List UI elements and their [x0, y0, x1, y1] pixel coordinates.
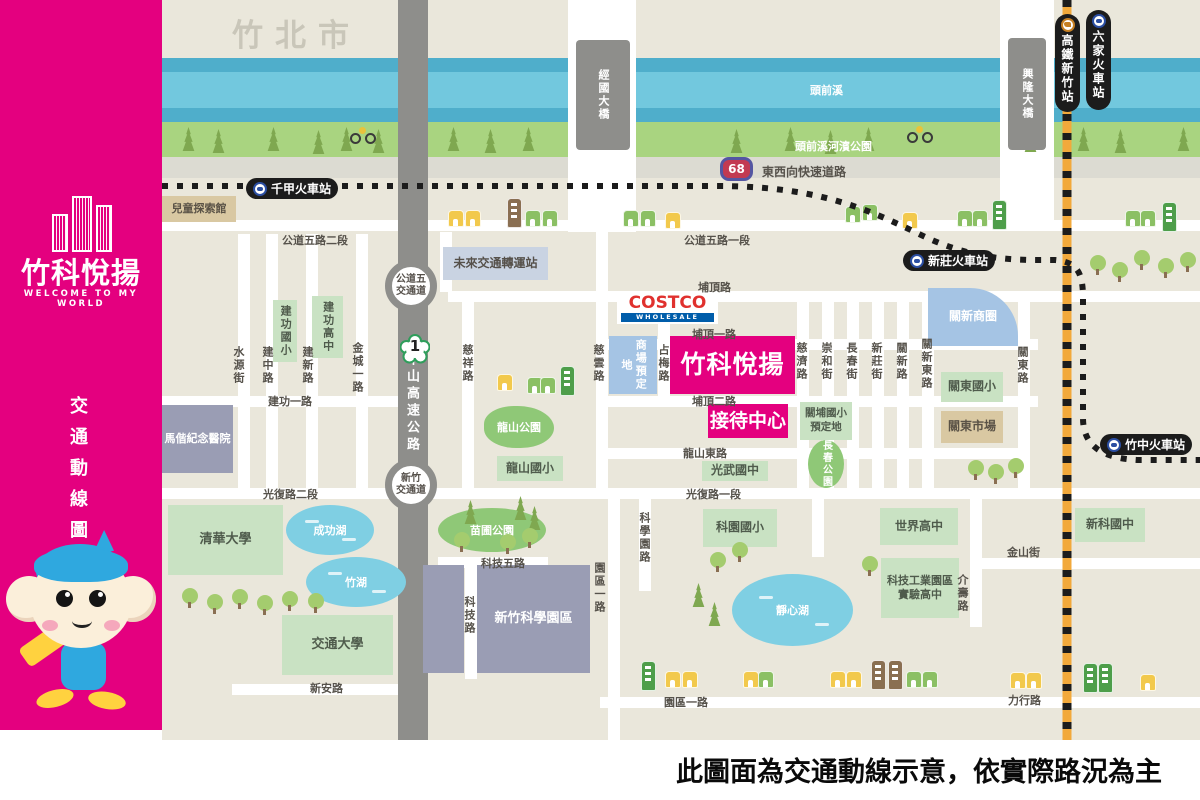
reception-center: 接待中心 — [708, 404, 788, 438]
tra-logo-icon — [253, 182, 267, 196]
house-icon — [1140, 674, 1156, 691]
tree-icon — [1008, 458, 1024, 474]
tra-logo-icon — [1107, 438, 1121, 452]
tree-icon — [988, 464, 1004, 480]
nthu-university: 清華大學 — [168, 505, 283, 575]
jingxin-lake: 靜心湖 — [732, 574, 853, 646]
route-1-number: 1 — [400, 337, 430, 355]
house-icon — [540, 377, 556, 394]
house-icon — [1026, 672, 1042, 689]
map-canvas: 竹北市 頭前溪 頭前溪河濱公園 68 東西向快速道路 — [162, 0, 1200, 740]
mascot-eye-right — [89, 590, 106, 607]
nctu-university: 交通大學 — [282, 615, 393, 675]
interchange-hsinchu: 新竹 交通道 — [385, 459, 437, 511]
station-zhuzhong: 竹中火車站 — [1100, 434, 1192, 455]
pine-tree-icon — [514, 496, 527, 520]
tree-icon — [710, 552, 726, 568]
brand-logo-icon — [52, 198, 112, 252]
building-tower-icon — [1098, 663, 1113, 693]
house-icon — [1140, 210, 1156, 227]
sidebar: 竹科悅揚 WELCOME TO MY WORLD 交通動線圖 — [0, 0, 162, 730]
label-puding-2: 埔頂二路 — [692, 393, 736, 409]
label-guanxin-e: 關新東路 — [921, 338, 932, 390]
street-jieshou — [970, 499, 982, 627]
brand-name: 竹科悅揚 — [0, 250, 162, 292]
route-68-shield: 68 — [720, 157, 753, 181]
mascot-cheek-right — [104, 620, 120, 631]
tree-icon — [1158, 258, 1174, 274]
label-longshan-e: 龍山東路 — [683, 445, 727, 461]
transit-hub: 未來交通轉運站 — [443, 247, 548, 280]
riverside-park-label: 頭前溪河濱公園 — [795, 138, 872, 154]
costco-wholesale-bar: WHOLESALE — [621, 313, 714, 322]
tree-icon — [282, 591, 298, 607]
tra-logo-icon — [1092, 14, 1106, 28]
station-qianjia: 千甲火車站 — [246, 178, 338, 199]
mascot-body — [61, 642, 106, 690]
label-keji: 科技路 — [464, 596, 475, 635]
transit-map-page: 竹北市 頭前溪 頭前溪河濱公園 68 東西向快速道路 — [0, 0, 1200, 800]
tree-icon — [1180, 252, 1196, 268]
street-xinzhuang-st — [872, 302, 884, 488]
label-gongdao5-2: 公道五路二段 — [282, 232, 348, 248]
costco-store: COSTCO WHOLESALE — [617, 293, 718, 324]
house-icon — [1125, 210, 1141, 227]
interchange-hsinchu-line1: 新竹 — [401, 473, 421, 485]
tree-icon — [1134, 250, 1150, 266]
tree-icon — [522, 528, 538, 544]
house-icon — [830, 671, 846, 688]
house-icon — [497, 374, 513, 391]
label-chonghe: 崇和街 — [821, 342, 832, 381]
station-liujia-label: 六家火車站 — [1090, 30, 1107, 100]
logo-tower-center — [72, 196, 92, 252]
house-icon — [665, 671, 681, 688]
station-xinzhuang-label: 新莊火車站 — [928, 252, 988, 269]
brand-tagline: WELCOME TO MY WORLD — [0, 289, 162, 309]
monkey-mascot — [6, 540, 156, 725]
house-icon — [665, 212, 681, 229]
label-changchun-st: 長春街 — [846, 342, 857, 381]
mascot-eye-left — [56, 590, 73, 607]
label-keji-5: 科技五路 — [481, 555, 525, 571]
label-puding-1: 埔頂一路 — [692, 326, 736, 342]
city-label: 竹北市 — [232, 10, 361, 55]
house-icon — [525, 210, 541, 227]
pine-tree-icon — [708, 602, 721, 626]
building-tower-icon — [641, 661, 656, 691]
jiangong-high: 建功高中 — [312, 296, 343, 358]
tree-icon — [500, 534, 516, 550]
label-shuiyuan: 水源街 — [233, 346, 244, 385]
xinglong-bridge: 興隆大橋 — [1008, 38, 1046, 150]
building-tower-icon — [1083, 663, 1098, 693]
interchange-hsinchu-line2: 交通道 — [396, 485, 426, 497]
station-qianjia-label: 千甲火車站 — [271, 180, 331, 197]
kids-museum: 兒童探索館 — [162, 196, 236, 222]
label-xinan: 新安路 — [310, 680, 343, 696]
house-icon — [906, 671, 922, 688]
label-guandong-rd: 關東路 — [1017, 346, 1028, 385]
station-zhuzhong-label: 竹中火車站 — [1125, 436, 1185, 453]
house-icon — [972, 210, 988, 227]
tree-icon — [308, 593, 324, 609]
label-yuanqu-1v: 園區一路 — [594, 562, 605, 614]
world-high: 世界高中 — [880, 508, 958, 545]
building-tower-icon — [888, 660, 903, 690]
building-tower-icon — [560, 366, 575, 396]
mascot-foot-left — [35, 686, 76, 712]
building-tower-icon — [1162, 202, 1177, 232]
guangwu-junior-high: 光武國中 — [702, 461, 768, 481]
jingguo-bridge: 經國大橋 — [576, 40, 630, 150]
house-icon — [922, 671, 938, 688]
label-zhanmei: 占梅路 — [658, 344, 669, 383]
street-keyuan-side — [812, 499, 824, 557]
label-xinzhuang-st: 新莊街 — [871, 342, 882, 381]
tree-icon — [862, 556, 878, 572]
highway-name-label: 中山高速公路 — [405, 352, 418, 454]
house-icon — [758, 671, 774, 688]
map-title-vertical: 交通動線圖 — [64, 396, 90, 551]
label-jiangong-1: 建功一路 — [268, 393, 312, 409]
house-icon — [640, 210, 656, 227]
label-jinshan: 金山街 — [1007, 544, 1040, 560]
tree-icon — [968, 460, 984, 476]
house-icon — [542, 210, 558, 227]
street-cixiang — [462, 300, 474, 488]
tree-icon — [732, 542, 748, 558]
tree-icon — [1112, 262, 1128, 278]
station-xinzhuang: 新莊火車站 — [903, 250, 995, 271]
house-icon — [743, 671, 759, 688]
science-park-block: 新竹科學園區 — [477, 565, 590, 673]
changchun-park-label: 長春公園 — [819, 440, 834, 488]
guandong-elementary: 關東國小 — [941, 372, 1003, 402]
pine-tree-icon — [692, 583, 705, 607]
guanpu-site-line2: 預定地 — [810, 421, 842, 435]
label-jianzhong: 建中路 — [262, 346, 273, 385]
label-jieshou: 介壽路 — [957, 574, 968, 613]
mall-planned-site: 商場預定地 — [609, 336, 657, 394]
house-icon — [845, 206, 861, 223]
interchange-gongdao5-line2: 交通道 — [396, 286, 426, 298]
tree-icon — [182, 588, 198, 604]
jingguo-bridge-label: 經國大橋 — [595, 69, 611, 121]
hsr-logo-icon — [1061, 18, 1075, 32]
logo-tower-left — [52, 214, 68, 252]
costco-wordmark: COSTCO — [629, 295, 707, 312]
tree-icon — [232, 589, 248, 605]
interchange-gongdao5-line1: 公道五 — [396, 274, 426, 286]
experimental-high-line2: 實驗高中 — [898, 588, 942, 602]
label-yuanqu-1: 園區一路 — [664, 694, 708, 710]
bicycle-icon — [907, 129, 933, 143]
house-icon — [465, 210, 481, 227]
guanpu-site-line1: 關埔國小 — [805, 407, 847, 421]
label-lixing: 力行路 — [1008, 692, 1041, 708]
station-hsr-hsinchu: 高鐵新竹站 — [1055, 14, 1080, 112]
tree-icon — [207, 594, 223, 610]
building-tower-icon — [992, 200, 1007, 230]
bicycle-icon — [350, 130, 376, 144]
house-icon — [902, 212, 918, 229]
project-site: 竹科悅揚 — [670, 336, 795, 394]
building-tower-icon — [871, 660, 886, 690]
street-guanxin — [897, 302, 909, 488]
house-icon — [682, 671, 698, 688]
mackay-hospital: 馬偕紀念醫院 — [162, 405, 233, 473]
house-icon — [448, 210, 464, 227]
mascot-fringe — [34, 548, 128, 582]
station-liujia: 六家火車站 — [1086, 10, 1111, 110]
experimental-high: 科技工業園區 實驗高中 — [881, 558, 959, 618]
river-name-label: 頭前溪 — [810, 82, 843, 98]
label-ciji: 慈濟路 — [796, 342, 807, 381]
label-jincheng-1: 金城一路 — [352, 342, 363, 394]
mascot-smile — [72, 614, 92, 628]
route-1-shield: 1 — [400, 334, 430, 364]
street-yuanqu-1-v — [608, 499, 620, 740]
label-guangfu-2: 光復路二段 — [263, 486, 318, 502]
route-68-number: 68 — [728, 162, 745, 176]
interchange-gongdao5: 公道五 交通道 — [385, 260, 437, 312]
label-puding: 埔頂路 — [698, 279, 731, 295]
label-guangfu-1: 光復路一段 — [686, 486, 741, 502]
logo-tower-right — [96, 205, 112, 252]
longshan-elementary: 龍山國小 — [497, 456, 563, 481]
label-ciyun: 慈雲路 — [593, 344, 604, 383]
street-puding — [448, 291, 1200, 302]
guanpu-elementary-site: 關埔國小 預定地 — [800, 402, 852, 440]
label-guanxin: 關新路 — [896, 342, 907, 381]
science-park-block-west — [423, 565, 464, 673]
longshan-park: 龍山公園 — [484, 406, 554, 448]
tree-icon — [454, 532, 470, 548]
chenggong-lake: 成功湖 — [286, 505, 374, 555]
house-icon — [957, 210, 973, 227]
jiangong-elementary: 建功國小 — [273, 300, 297, 362]
label-cixiang: 慈祥路 — [462, 344, 473, 383]
station-hsr-label: 高鐵新竹站 — [1059, 34, 1076, 104]
mascot-foot-right — [87, 689, 127, 712]
map-disclaimer: 此圖面為交通動線示意，依實際路況為主 — [676, 750, 1162, 789]
changchun-park: 長春公園 — [808, 440, 844, 488]
house-icon — [846, 671, 862, 688]
xinke-junior-high: 新科國中 — [1075, 508, 1145, 542]
street-changchun — [847, 302, 859, 488]
label-kexueyuan: 科學園路 — [639, 512, 650, 564]
mascot-cheek-left — [42, 620, 58, 631]
expressway-label: 東西向快速道路 — [762, 163, 846, 180]
house-icon — [1010, 672, 1026, 689]
tra-logo-icon — [910, 254, 924, 268]
xinglong-bridge-label: 興隆大橋 — [1019, 68, 1035, 120]
label-jianxin: 建新路 — [302, 346, 313, 385]
building-tower-icon — [507, 198, 522, 228]
house-icon — [623, 210, 639, 227]
tree-icon — [257, 595, 273, 611]
label-gongdao5-1: 公道五路一段 — [684, 232, 750, 248]
tree-icon — [1090, 255, 1106, 271]
guandong-market: 關東市場 — [941, 411, 1003, 443]
experimental-high-line1: 科技工業園區 — [887, 574, 953, 588]
house-icon — [862, 204, 878, 221]
